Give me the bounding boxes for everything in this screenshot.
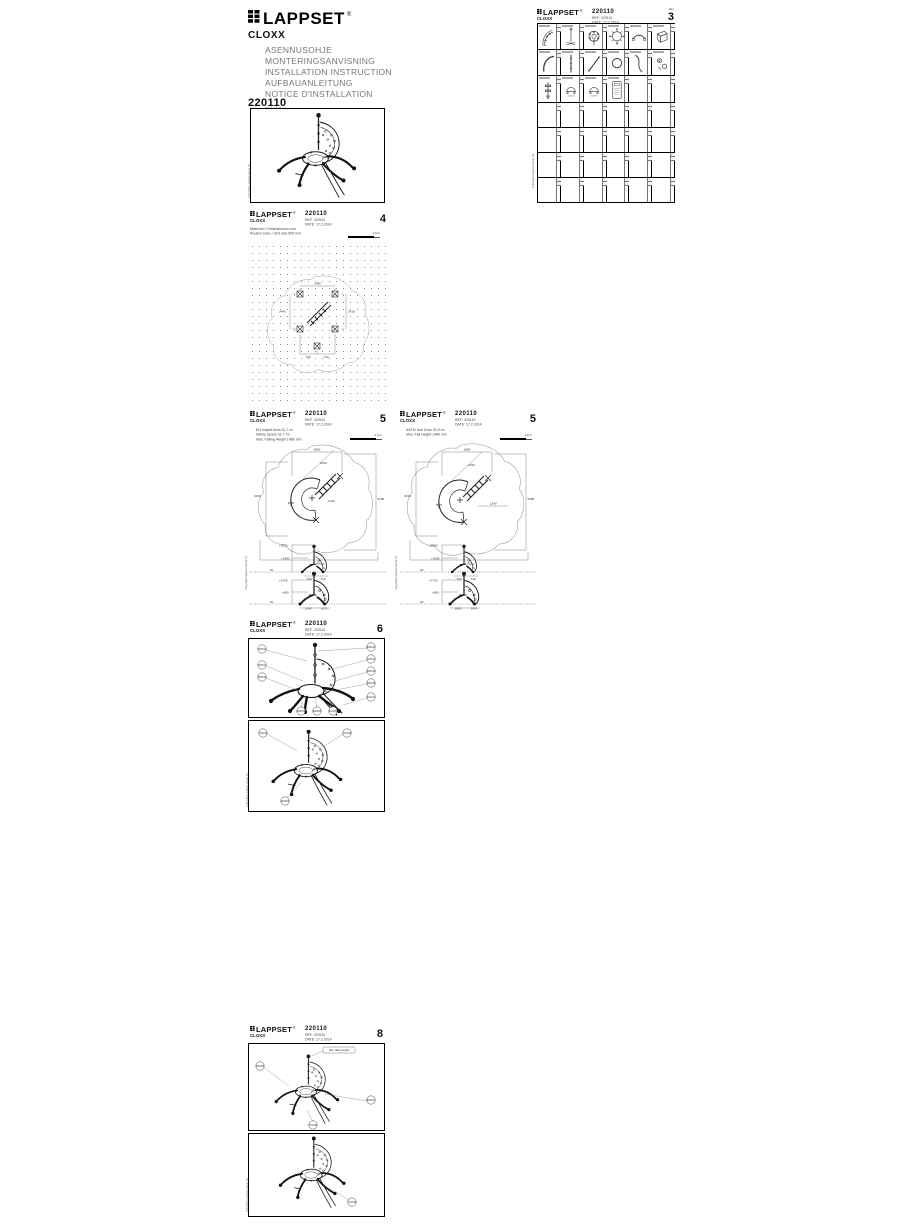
- parts-cell: [538, 128, 561, 153]
- dim-label: 740: [305, 355, 310, 359]
- part-diagonal-rod-icon: [585, 53, 603, 75]
- part-balloon: 701015: [259, 729, 297, 751]
- parts-cell: [607, 103, 630, 128]
- dim-label: 6760: [465, 562, 472, 566]
- dim-label: ±0: [270, 568, 274, 572]
- page-number: 8: [377, 1029, 383, 1040]
- page-number: 6: [377, 624, 383, 635]
- anchoring-drawing: Max. falling height 800250 800137 701040: [249, 1044, 384, 1130]
- lappset-logo-icon: [250, 411, 255, 416]
- parts-cell: [584, 103, 607, 128]
- lappset-logo: LAPPSET ®: [248, 10, 398, 27]
- dim-label: +1480: [431, 557, 440, 561]
- parts-cell: [584, 128, 607, 153]
- parts-cell: [607, 50, 630, 76]
- sheet-foundation-plan: LAPPSET® CLOXX 220110 REF: 220110DATE: 1…: [248, 210, 388, 406]
- part-stud-disc-icon: [608, 27, 626, 49]
- dim-label: 3430: [254, 494, 261, 498]
- svg-text:Max. falling height: Max. falling height: [329, 1049, 349, 1052]
- lappset-logo-icon: [250, 211, 255, 216]
- parts-cell: [538, 76, 561, 103]
- registered-mark: ®: [347, 12, 351, 18]
- dim-label: 1240: [328, 499, 335, 503]
- parts-cell: [561, 128, 584, 153]
- dim-label: +890: [432, 591, 439, 595]
- parts-cell: [561, 24, 584, 50]
- scale-bar: 1.0 m: [348, 232, 380, 239]
- exploded-view-panel: 000510 000512 000514 800101 003110 00051…: [248, 638, 385, 718]
- parts-cell: [607, 76, 630, 103]
- part-balloon: 920250: [313, 698, 322, 715]
- copyright-vertical: Copyright Lappset Group Oy: [246, 773, 249, 807]
- svg-text:000510: 000510: [258, 648, 267, 651]
- svg-text:920251: 920251: [281, 800, 290, 803]
- assembled-drawing: 701015 701016 920251: [249, 721, 384, 811]
- part-label-sticker-icon: [608, 79, 626, 101]
- svg-text:452015: 452015: [367, 682, 376, 685]
- svg-text:910101: 910101: [367, 696, 376, 699]
- copyright-vertical: Copyright Lappset Group Oy: [248, 164, 251, 198]
- anchoring-view-panel: Max. falling height 800250 800137 701040: [248, 1043, 385, 1131]
- parts-cell: [607, 24, 630, 50]
- part-rope-icon: [630, 53, 648, 75]
- dim-label: +1480: [281, 557, 290, 561]
- svg-text:000512: 000512: [258, 664, 267, 667]
- svg-text:701045: 701045: [348, 1201, 357, 1204]
- page-number: 5: [530, 414, 536, 425]
- dim-label: +2850: [429, 544, 438, 548]
- title-sv: MONTERINGSANVISNING: [265, 56, 398, 67]
- part-clamp-icon: [585, 79, 603, 101]
- dim-label: 740: [320, 577, 325, 581]
- dim-label: 2150: [320, 461, 327, 465]
- copyright-vertical: Copyright Lappset Group Oy: [246, 1178, 249, 1212]
- part-balloon: 000510: [258, 645, 307, 661]
- part-long-post-icon: [562, 53, 580, 75]
- parts-cell: [538, 103, 561, 128]
- parts-cell: [652, 153, 675, 178]
- part-flange-ring-icon: [585, 27, 603, 49]
- parts-cell: [561, 153, 584, 178]
- plan-notes: Mitat mm / Dimensions in mm Ruudun koko …: [250, 227, 301, 236]
- parts-cell: [561, 103, 584, 128]
- dim-label: 6460: [315, 562, 322, 566]
- part-balloon: 701045: [329, 1188, 357, 1206]
- parts-cell: [652, 178, 675, 203]
- svg-text:920249: 920249: [297, 710, 306, 713]
- copyright-vertical: Copyright Lappset Group Oy: [532, 154, 535, 188]
- title-en: INSTALLATION INSTRUCTION: [265, 67, 398, 78]
- svg-text:800250: 800250: [256, 1065, 265, 1068]
- part-bracket-icon: [653, 27, 671, 49]
- parts-table: [537, 23, 675, 203]
- part-curved-tube-icon: [539, 53, 557, 75]
- parts-cell: [607, 153, 630, 178]
- lappset-logo-icon: [250, 1026, 255, 1031]
- dim-label: 1860: [464, 448, 471, 452]
- page-number: 5: [380, 414, 386, 425]
- dim-label: 1830: [455, 607, 462, 611]
- parts-cell: [561, 76, 584, 103]
- sheet-parts-list: LAPPSET ® CLOXX 220110 REF: 220110 DATE:…: [535, 8, 676, 204]
- dim-label: 790: [306, 577, 311, 581]
- part-balloon: 701016: [323, 729, 352, 747]
- overview-drawing-panel: Copyright Lappset Group Oy: [250, 108, 385, 203]
- cloxx-side-view-drawing: [253, 110, 384, 201]
- svg-text:701015: 701015: [259, 732, 268, 735]
- dim-label: 790: [456, 577, 461, 581]
- part-handle-bar-icon: [630, 27, 648, 49]
- parts-cell: [607, 128, 630, 153]
- parts-cell: [538, 50, 561, 76]
- parts-cell: [629, 76, 652, 103]
- lappset-logo-icon: [537, 9, 542, 14]
- svg-text:800137: 800137: [367, 1099, 376, 1102]
- parts-cell: [561, 50, 584, 76]
- part-balloon: 003110: [333, 655, 376, 669]
- parts-cell: [584, 50, 607, 76]
- part-curved-panel-icon: [539, 27, 557, 49]
- safety-area-drawing: 1860 3430 5480 6760 2150 1240 +2850 +148…: [398, 440, 538, 610]
- part-balloon: 800101: [318, 643, 376, 651]
- sheet-safety-area-astm: LAPPSET® CLOXX 220110 REF: 220110DATE: 1…: [398, 410, 538, 610]
- brand-name: LAPPSET: [263, 10, 345, 27]
- product-name: CLOXX: [248, 30, 398, 41]
- sheet-code: 220110: [592, 9, 614, 15]
- parts-cell: [561, 178, 584, 203]
- dim-label: ±0: [420, 568, 424, 572]
- page-number: 4: [380, 214, 386, 225]
- dim-label: 2440: [279, 310, 286, 314]
- parts-cell: [629, 153, 652, 178]
- svg-text:910040: 910040: [329, 710, 338, 713]
- parts-cell: [584, 24, 607, 50]
- title-de: AUFBAUANLEITUNG: [265, 78, 398, 89]
- dim-label: +1750: [279, 579, 288, 583]
- dim-label: 1480: [314, 282, 321, 286]
- dim-label: 1240: [305, 607, 312, 611]
- dim-label: 5480: [528, 497, 535, 501]
- parts-cell: [629, 178, 652, 203]
- dim-label: ±0: [420, 600, 424, 604]
- safety-notes: ASTM Use Zone 32,9 m² Max. Fall Height 1…: [406, 428, 447, 437]
- part-anchor-bolt-icon: [539, 79, 557, 101]
- parts-cell: [538, 153, 561, 178]
- document-canvas: LAPPSET ® CLOXX ASENNUSOHJE MONTERINGSAN…: [0, 0, 920, 1226]
- lappset-logo-icon: [400, 411, 405, 416]
- dim-label: +1750: [429, 579, 438, 583]
- svg-text:800101: 800101: [367, 646, 376, 649]
- assembled-view-panel: Copyright Lappset Group Oy 701015 701016…: [248, 720, 385, 812]
- parts-cell: [652, 24, 675, 50]
- dim-label: ±0: [270, 600, 274, 604]
- dim-label: 3430: [404, 494, 411, 498]
- parts-cell: [652, 128, 675, 153]
- part-balloon: 800250: [256, 1062, 289, 1086]
- foundation-plan-drawing: 1480 2440 2410 740 740: [248, 242, 388, 406]
- dim-label: 2410: [348, 310, 355, 314]
- lappset-logo-icon: [248, 10, 261, 23]
- svg-text:000514: 000514: [258, 676, 267, 679]
- parts-cell: [584, 153, 607, 178]
- part-post-base-icon: [562, 27, 580, 49]
- parts-cell: [629, 50, 652, 76]
- svg-text:003110: 003110: [367, 658, 376, 661]
- parts-cell: [538, 24, 561, 50]
- dim-label: 740: [323, 355, 328, 359]
- final-view-panel: Copyright Lappset Group Oy 701045: [248, 1133, 385, 1217]
- parts-cell: [652, 103, 675, 128]
- sheet-safety-area-en: LAPPSET® CLOXX 220110 REF: 220110DATE: 1…: [248, 410, 388, 610]
- sheet-product: CLOXX: [537, 16, 552, 21]
- part-clamp-icon: [562, 79, 580, 101]
- svg-text:701016: 701016: [343, 732, 352, 735]
- parts-cell: [629, 24, 652, 50]
- dim-label: 1240: [490, 502, 497, 506]
- dim-label: 1070: [321, 607, 328, 611]
- page-number: 3: [668, 12, 674, 23]
- part-ring-icon: [608, 53, 626, 75]
- parts-cell: [584, 76, 607, 103]
- lappset-logo-icon: [250, 621, 255, 626]
- grid-dot-field: 1480 2440 2410 740 740: [248, 242, 388, 406]
- parts-cell: [629, 103, 652, 128]
- dim-label: 1860: [314, 448, 321, 452]
- parts-cell: [652, 76, 675, 103]
- title-fi: ASENNUSOHJE: [265, 45, 398, 56]
- exploded-assembly-drawing: 000510 000512 000514 800101 003110 00051…: [249, 639, 384, 717]
- svg-text:701040: 701040: [309, 1124, 318, 1127]
- dim-label: 1070: [471, 607, 478, 611]
- dim-label: 5180: [378, 497, 385, 501]
- dim-label: 740: [470, 577, 475, 581]
- parts-cell: [538, 178, 561, 203]
- part-balloon: 701040: [307, 1110, 318, 1129]
- part-balloon: 000514: [258, 673, 299, 691]
- parts-cell: [607, 178, 630, 203]
- instruction-titles: ASENNUSOHJE MONTERINGSANVISNING INSTALLA…: [265, 45, 398, 100]
- sheet-anchoring: LAPPSET® CLOXX 220110 REF: 220110DATE: 1…: [248, 1025, 385, 1217]
- note-flag: Max. falling height: [309, 1047, 355, 1057]
- parts-cell: [652, 50, 675, 76]
- final-assembly-drawing: 701045: [249, 1134, 384, 1216]
- parts-cell: [584, 178, 607, 203]
- sheet-assembly: LAPPSET® CLOXX 220110 REF: 220110DATE: 1…: [248, 620, 385, 812]
- safety-area-drawing: 1860 3430 5180 6460 2150 1240 +2850 +148…: [248, 440, 388, 610]
- part-hardware-icon: [653, 53, 671, 75]
- svg-text:000511: 000511: [367, 670, 376, 673]
- svg-text:920250: 920250: [313, 710, 322, 713]
- dim-label: +2850: [279, 544, 288, 548]
- parts-cell: [629, 128, 652, 153]
- dim-label: +890: [282, 591, 289, 595]
- dim-label: 2150: [468, 463, 475, 467]
